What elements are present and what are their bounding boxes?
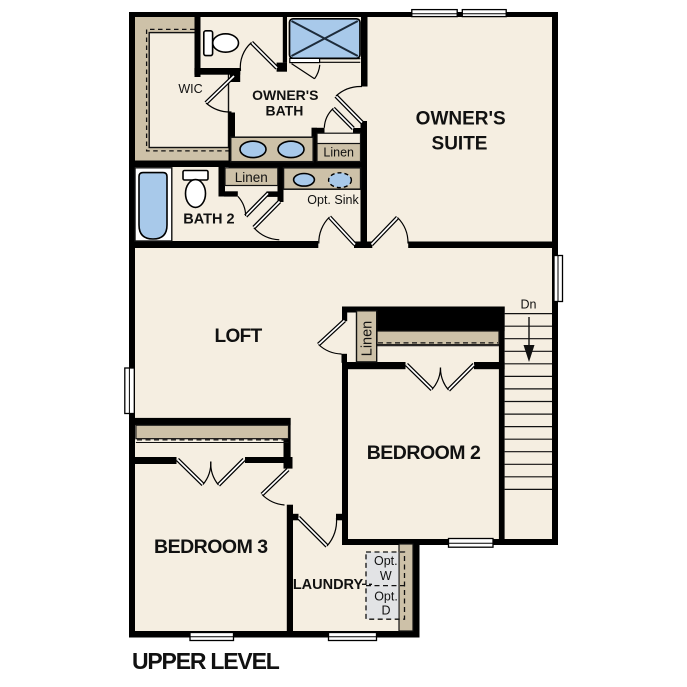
svg-text:LAUNDRY: LAUNDRY — [293, 577, 364, 593]
svg-text:Dn: Dn — [521, 297, 537, 311]
svg-text:BEDROOM 2: BEDROOM 2 — [367, 442, 481, 464]
svg-text:BATH 2: BATH 2 — [183, 212, 234, 228]
svg-text:OWNER'S: OWNER'S — [416, 108, 506, 129]
svg-text:Opt. Sink: Opt. Sink — [307, 193, 359, 207]
svg-text:W: W — [380, 569, 392, 583]
svg-text:LOFT: LOFT — [214, 326, 262, 347]
svg-text:BEDROOM 3: BEDROOM 3 — [154, 536, 268, 558]
svg-text:D: D — [381, 604, 390, 618]
svg-text:Linen: Linen — [235, 170, 268, 185]
svg-text:Linen: Linen — [323, 146, 354, 160]
svg-text:WIC: WIC — [178, 82, 202, 96]
svg-text:Opt.: Opt. — [374, 590, 398, 604]
svg-text:UPPER LEVEL: UPPER LEVEL — [132, 648, 280, 674]
svg-text:Opt.: Opt. — [374, 554, 398, 568]
svg-text:OWNER'S: OWNER'S — [252, 87, 318, 103]
svg-text:SUITE: SUITE — [432, 134, 488, 155]
svg-text:Linen: Linen — [360, 321, 376, 356]
svg-text:BATH: BATH — [265, 102, 303, 118]
